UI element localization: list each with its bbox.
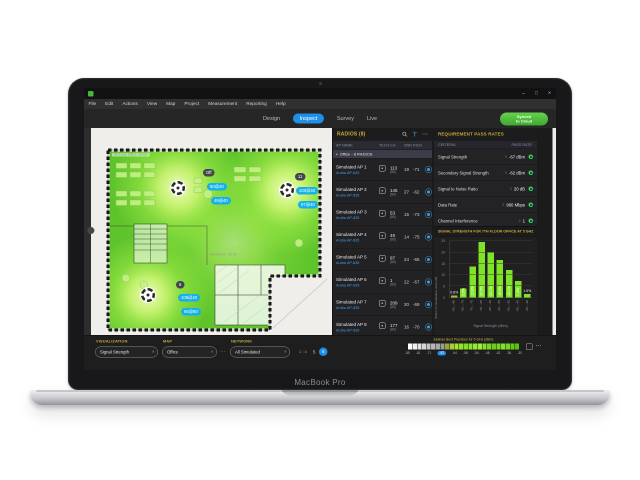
chart-bar: 24.5% [478, 242, 485, 297]
legend-colorbar [408, 344, 520, 350]
menu-item[interactable]: Help [271, 99, 290, 109]
legend-cell [468, 344, 472, 350]
ap2-status-pill: 11 [295, 173, 305, 181]
visualization-label: VISUALIZATION [96, 339, 128, 344]
map-canvas[interactable]: 7th Floor Office 39x6m VANKATO - 61 m² O… [84, 128, 332, 335]
legend-cell [454, 344, 458, 350]
requirement-row[interactable]: Signal to Noise Ratio ≥ 20 dB [434, 181, 537, 197]
chart-xlabels: -85…-80-80…-75-75…-70-70…-65-65…-60-60…-… [449, 299, 532, 320]
channel-width: (80) [390, 170, 404, 174]
requirements-column-headers: CRITERIA PASS RATE [434, 141, 537, 150]
network-dropdown[interactable]: All Simulated [230, 347, 290, 358]
ap3-channel-pill: 108@40 [178, 294, 200, 302]
x-tick: -65…-60 [489, 300, 492, 312]
channel-width: (80) [390, 305, 404, 309]
legend-cell [464, 344, 468, 350]
radio-status-icon[interactable] [425, 279, 432, 286]
app-icon [88, 91, 94, 97]
radio-status-icon[interactable] [425, 234, 432, 241]
legend-cell [487, 344, 491, 350]
legend-title: Ekahau Best Practices for 5 GHz (dBm) [408, 338, 519, 342]
lid-notch [282, 390, 358, 397]
panel-collapse-handle[interactable] [88, 227, 95, 234]
legend-cell [436, 344, 440, 350]
laptop-screen: – □ × FileEditActionsViewMapProjectMeasu… [84, 88, 556, 370]
group-label: Office - 8 RADIOS [340, 152, 373, 157]
legend-cell [413, 344, 417, 350]
laptop-brand-label: MacBook Pro [68, 378, 572, 387]
radios-list: Simulated AP 1 Aruba AP-635 113 (80) 19 [333, 159, 432, 336]
x-tick: -85…-80 [452, 300, 455, 312]
snr-value: 22 [404, 280, 413, 285]
threshold-operator: ≥ [510, 187, 512, 191]
requirements-title: REQUIREMENT PASS RATES [438, 132, 504, 137]
map-label: MAP [163, 339, 172, 344]
legend-cell [445, 344, 449, 350]
legend-more-icon[interactable] [536, 342, 542, 349]
ap-icon [171, 181, 185, 195]
more-options-icon[interactable] [422, 132, 428, 137]
legend-cell [496, 344, 500, 350]
bar-label: 13.8% [471, 286, 475, 296]
rssi-value: -70 [413, 325, 425, 330]
legend-tick[interactable]: -71 [427, 352, 432, 356]
requirements-list: Signal Strength ≥ -67 dBm Secondar [434, 149, 537, 229]
legend-cell [510, 344, 514, 350]
legend-tick[interactable]: -67 [438, 351, 447, 356]
toolbar: Design Inspect Survey Live Synced to Clo… [84, 109, 556, 128]
page-button[interactable]: 5 [313, 350, 315, 355]
col-ch: CH [390, 143, 404, 148]
floor-title: 7th Floor Office 39x6m [112, 153, 149, 157]
ap-name: Simulated AP 4 [336, 232, 379, 237]
search-icon[interactable] [402, 131, 408, 137]
legend-tick[interactable]: -85 [405, 352, 410, 356]
legend-cell [441, 344, 445, 350]
menu-item[interactable]: Measurement [204, 99, 242, 109]
ap-name: Simulated AP 3 [336, 209, 379, 214]
bar-label: 20.1% [489, 286, 493, 296]
legend-tick[interactable]: -36 [507, 352, 512, 356]
rssi-value: -75 [413, 235, 425, 240]
criteria-label: Signal Strength [438, 154, 467, 159]
criteria-label: Signal to Noise Ratio [438, 186, 478, 191]
bottom-toolbar: VISUALIZATION Signal Strength MAP Office… [84, 335, 556, 370]
view-tabs: Design Inspect Survey Live [263, 109, 377, 128]
channel-width: (80) [390, 215, 404, 219]
network-label: NETWORK [231, 339, 252, 344]
menu-item[interactable]: Project [180, 99, 204, 109]
menu-item[interactable]: Map [162, 99, 180, 109]
chart-bar: 1.5% [524, 294, 531, 297]
legend-tick[interactable]: -54 [474, 352, 479, 356]
tab-design[interactable]: Design [263, 116, 280, 122]
radio-row[interactable]: Simulated AP 5 Aruba AP-635 97 (80) 24 [333, 249, 432, 272]
chart-bar: 13.8% [469, 266, 476, 297]
ap3-channel-pill-2: 65@80 [181, 308, 201, 316]
channel-width: (80) [390, 193, 404, 197]
y-tick: 25 [441, 239, 445, 243]
wifi-tech-icon [379, 278, 386, 285]
ap3-status-pill: 6 [176, 281, 184, 289]
close-button[interactable]: × [543, 88, 556, 99]
ap-model-link[interactable]: Aruba AP-635 [336, 305, 379, 310]
snr-value: 27 [404, 190, 413, 195]
wifi-tech-icon [379, 210, 386, 217]
legend-cell [506, 344, 510, 350]
ap-model-link[interactable]: Aruba AP-635 [336, 170, 379, 175]
chart-bars: 0.8%3.9%13.8%24.5%20.1%16.6%12.1%7.2%1.5… [450, 241, 533, 298]
radio-row[interactable]: Simulated AP 1 Aruba AP-635 113 (80) 19 [333, 159, 432, 182]
threshold-value: 960 Mbps [506, 202, 525, 207]
y-tick: 15 [441, 262, 445, 266]
wifi-tech-icon [379, 255, 386, 262]
col-snr: SNR [404, 143, 413, 148]
col-ap-name: AP NAME [336, 143, 379, 148]
criteria-label: Secondary Signal Strength [438, 170, 489, 175]
pass-status-dot [529, 171, 534, 176]
legend-cell [473, 344, 477, 350]
requirement-row[interactable]: Secondary Signal Strength ≥ -62 dBm [434, 165, 537, 181]
y-tick: 5 [443, 285, 445, 289]
threshold-value: 1 [523, 218, 525, 223]
wifi-tech-icon [379, 323, 386, 330]
chart-plot-area: 0.8%3.9%13.8%24.5%20.1%16.6%12.1%7.2%1.5… [449, 241, 532, 298]
wifi-tech-icon [379, 300, 386, 307]
pass-status-dot [529, 203, 534, 208]
ap-model-link[interactable]: Aruba AP-635 [336, 260, 379, 265]
ap-name: Simulated AP 2 [336, 187, 379, 192]
x-tick: -45…-40 [526, 300, 529, 312]
window-titlebar: – □ × [84, 88, 556, 99]
gridline [450, 286, 533, 287]
legend-tick[interactable]: -48 [485, 352, 490, 356]
ap-name: Simulated AP 7 [336, 299, 379, 304]
chart-yticks: 0510152025 [434, 241, 447, 298]
menu-item[interactable]: Reporting [242, 99, 272, 109]
radios-group-row[interactable]: Office - 8 RADIOS [333, 150, 432, 159]
legend-cell [459, 344, 463, 350]
page-button-active[interactable]: 6 [319, 348, 328, 357]
bar-label: 16.6% [498, 286, 502, 296]
pass-status-dot [529, 155, 534, 160]
legend-cell [431, 344, 435, 350]
legend-cell [450, 344, 454, 350]
gridline [450, 274, 533, 275]
radio-status-icon[interactable] [425, 189, 432, 196]
radio-row[interactable]: Simulated AP 3 Aruba AP-635 53 (80) 15 [333, 204, 432, 227]
threshold-operator: ≥ [502, 203, 504, 207]
col-tech: TECH [379, 143, 390, 148]
ap-icon [141, 288, 155, 302]
snr-value: 15 [404, 212, 413, 217]
cloud-sync-label-line2: to Cloud [500, 119, 548, 124]
ap2-channel-pill-2: 97@40 [298, 201, 318, 209]
snr-value: 20 [404, 302, 413, 307]
legend-cell [427, 344, 431, 350]
legend-cell [408, 344, 412, 350]
map-dropdown[interactable]: Office [162, 347, 217, 358]
radio-status-icon[interactable] [425, 166, 432, 173]
channel-width: (80) [390, 260, 404, 264]
snr-value: 16 [404, 325, 413, 330]
radio-row[interactable]: Simulated AP 2 Aruba AP-635 145 (80) 27 [333, 181, 432, 204]
criteria-label: Channel Interference [438, 218, 478, 223]
radio-row[interactable]: Simulated AP 8 Aruba AP-635 177 (80) 16 [333, 316, 432, 335]
legend-cell [515, 344, 519, 350]
menu-item[interactable]: Edit [101, 99, 118, 109]
requirement-row[interactable]: Data Rate ≥ 960 Mbps [434, 197, 537, 213]
snr-value: 19 [404, 167, 413, 172]
bar-label: 7.2% [516, 288, 520, 296]
radio-row[interactable]: Simulated AP 6 Aruba AP-635 1 (80) 22 [333, 271, 432, 294]
ap-marker-2[interactable] [280, 183, 294, 197]
main-content: 7th Floor Office 39x6m VANKATO - 61 m² O… [84, 128, 556, 335]
threshold-value: -67 dBm [509, 154, 525, 159]
room-label: VANKATO - 61 m² [209, 253, 237, 257]
scrollbar[interactable] [553, 128, 557, 370]
radios-title: RADIOS (8) [337, 131, 365, 137]
antenna-icon[interactable] [412, 131, 418, 137]
threshold-value: 20 dB [514, 186, 525, 191]
bar-label: 0.8% [450, 291, 458, 295]
bar-label: 3.9% [462, 288, 466, 296]
gridline [450, 263, 533, 264]
wifi-tech-icon [379, 165, 386, 172]
threshold-value: -62 dBm [509, 170, 525, 175]
ap-model-link[interactable]: Aruba AP-635 [336, 328, 379, 333]
legend-cell [478, 344, 482, 350]
rssi-value: -62 [413, 190, 425, 195]
ap-model-link[interactable]: Aruba AP-635 [336, 238, 379, 243]
ap-icon [280, 183, 294, 197]
pass-status-dot [529, 187, 534, 192]
wifi-survey-app: – □ × FileEditActionsViewMapProjectMeasu… [84, 88, 556, 370]
ap-model-link[interactable]: Aruba AP-635 [336, 193, 379, 198]
tab-live[interactable]: Live [367, 116, 377, 122]
ap2-channel-pill: 100@40 [296, 187, 318, 195]
ap-name: Simulated AP 8 [336, 322, 379, 327]
ap1-status-pill: Off [203, 169, 215, 177]
col-criteria: CRITERIA [438, 142, 456, 147]
x-tick: -55…-50 [507, 300, 510, 312]
menu-item[interactable]: Actions [118, 99, 143, 109]
legend-cell [501, 344, 505, 350]
ap-marker-3[interactable] [141, 288, 155, 302]
chart-bar: 16.6% [497, 260, 504, 298]
rssi-value: -69 [413, 302, 425, 307]
ap-model-link[interactable]: Aruba AP-635 [336, 283, 379, 288]
wifi-tech-icon [379, 188, 386, 195]
rssi-value: -71 [413, 167, 425, 172]
requirement-row[interactable]: Signal Strength ≥ -67 dBm [434, 149, 537, 165]
macbook-base [30, 390, 610, 405]
minimize-button[interactable]: – [517, 88, 530, 99]
channel-width: (80) [390, 328, 404, 332]
rssi-value: -67 [413, 280, 425, 285]
cloud-sync-button[interactable]: Synced to Cloud [500, 113, 548, 126]
pass-status-dot [529, 219, 534, 224]
tab-inspect[interactable]: Inspect [293, 114, 324, 124]
legend-tick[interactable]: -81 [416, 352, 421, 356]
menu-item[interactable]: File [84, 99, 101, 109]
network-value: All Simulated [235, 350, 260, 355]
wifi-tech-icon [379, 233, 386, 240]
channel-width: (80) [390, 283, 404, 287]
y-tick: 10 [441, 273, 445, 277]
channel-width: (80) [390, 238, 404, 242]
snr-value: 24 [404, 257, 413, 262]
col-pass-rate: PASS RATE [512, 142, 532, 147]
radios-column-headers: AP NAME TECH CH SNR RSSI [333, 141, 432, 151]
visualization-value: Signal Strength [100, 350, 129, 355]
legend-ticks: -85-81-71-67-64-58-54-48-42-36-30 [405, 351, 522, 356]
y-tick: 20 [441, 251, 445, 255]
bar-label: 1.5% [523, 290, 531, 294]
radio-status-icon[interactable] [425, 211, 432, 218]
x-tick: -60…-55 [498, 300, 501, 312]
ap-name: Simulated AP 6 [336, 277, 379, 282]
rssi-value: -65 [413, 257, 425, 262]
legend-cell [482, 344, 486, 350]
scene: – □ × FileEditActionsViewMapProjectMeasu… [0, 0, 640, 480]
ap1-channel-pill-2: 49@40 [211, 197, 231, 205]
threshold-operator: ≥ [505, 171, 507, 175]
radio-status-icon[interactable] [425, 324, 432, 331]
x-tick: -50…-45 [517, 300, 520, 312]
bar-label: 24.5% [480, 286, 484, 296]
ap-marker-1[interactable] [171, 181, 185, 195]
legend-cell [417, 344, 421, 350]
requirements-panel: REQUIREMENT PASS RATES CRITERIA PASS RAT… [434, 128, 537, 335]
visualization-dropdown[interactable]: Signal Strength [95, 347, 158, 358]
gridline [450, 252, 533, 253]
legend-cell [492, 344, 496, 350]
legend-tick[interactable]: -30 [517, 352, 522, 356]
x-axis-title: Signal Strength (dBm) [449, 325, 532, 329]
map-more-icon[interactable] [220, 349, 226, 356]
ap1-channel-pill: 60@40 [207, 183, 227, 191]
chart-bar: 3.9% [460, 289, 467, 298]
x-tick: -75…-70 [471, 300, 474, 312]
radio-status-icon[interactable] [425, 301, 432, 308]
macbook-lid: – □ × FileEditActionsViewMapProjectMeasu… [68, 78, 572, 390]
y-tick: 0 [443, 296, 445, 300]
radio-row[interactable]: Simulated AP 7 Aruba AP-635 209 (80) 20 [333, 294, 432, 317]
radios-panel: RADIOS (8) AP NAME TECH CH SNR [332, 128, 432, 335]
maximize-button[interactable]: □ [530, 88, 543, 99]
map-value: Office [167, 350, 178, 355]
x-tick: -70…-65 [480, 300, 483, 312]
threshold-operator: ≥ [505, 155, 507, 159]
criteria-label: Data Rate [438, 202, 457, 207]
legend-tick[interactable]: -58 [463, 352, 468, 356]
chart-bar: 0.8% [451, 296, 458, 298]
menu-bar: FileEditActionsViewMapProjectMeasurement… [84, 99, 556, 110]
bar-label: 12.1% [507, 286, 511, 296]
gridline [450, 241, 533, 242]
radio-status-icon[interactable] [425, 256, 432, 263]
threshold-operator: ≤ [519, 219, 521, 223]
rssi-value: -73 [413, 212, 425, 217]
chart-bar: 7.2% [515, 281, 522, 297]
floorplan-svg[interactable] [84, 128, 332, 335]
snr-value: 14 [404, 235, 413, 240]
expand-icon[interactable] [526, 344, 533, 351]
radios-header: RADIOS (8) [333, 128, 432, 141]
menu-item[interactable]: View [142, 99, 161, 109]
ap-name: Simulated AP 1 [336, 164, 379, 169]
radio-row[interactable]: Simulated AP 4 Aruba AP-635 49 (80) 14 [333, 226, 432, 249]
tab-survey[interactable]: Survey [337, 116, 354, 122]
ap-name: Simulated AP 5 [336, 254, 379, 259]
legend-tick[interactable]: -42 [496, 352, 501, 356]
signal-strength-chart: SIGNAL STRENGTH FOR 7TH FLOOR OFFICE AT … [434, 226, 537, 335]
window-controls: – □ × [517, 88, 556, 99]
zoom-scale: 1 : 4 [299, 350, 307, 355]
webcam-icon [319, 82, 322, 85]
col-rssi: RSSI [413, 143, 425, 148]
legend-cell [422, 344, 426, 350]
legend-tick[interactable]: -64 [452, 352, 457, 356]
ap-model-link[interactable]: Aruba AP-635 [336, 215, 379, 220]
x-tick: -80…-75 [461, 300, 464, 312]
